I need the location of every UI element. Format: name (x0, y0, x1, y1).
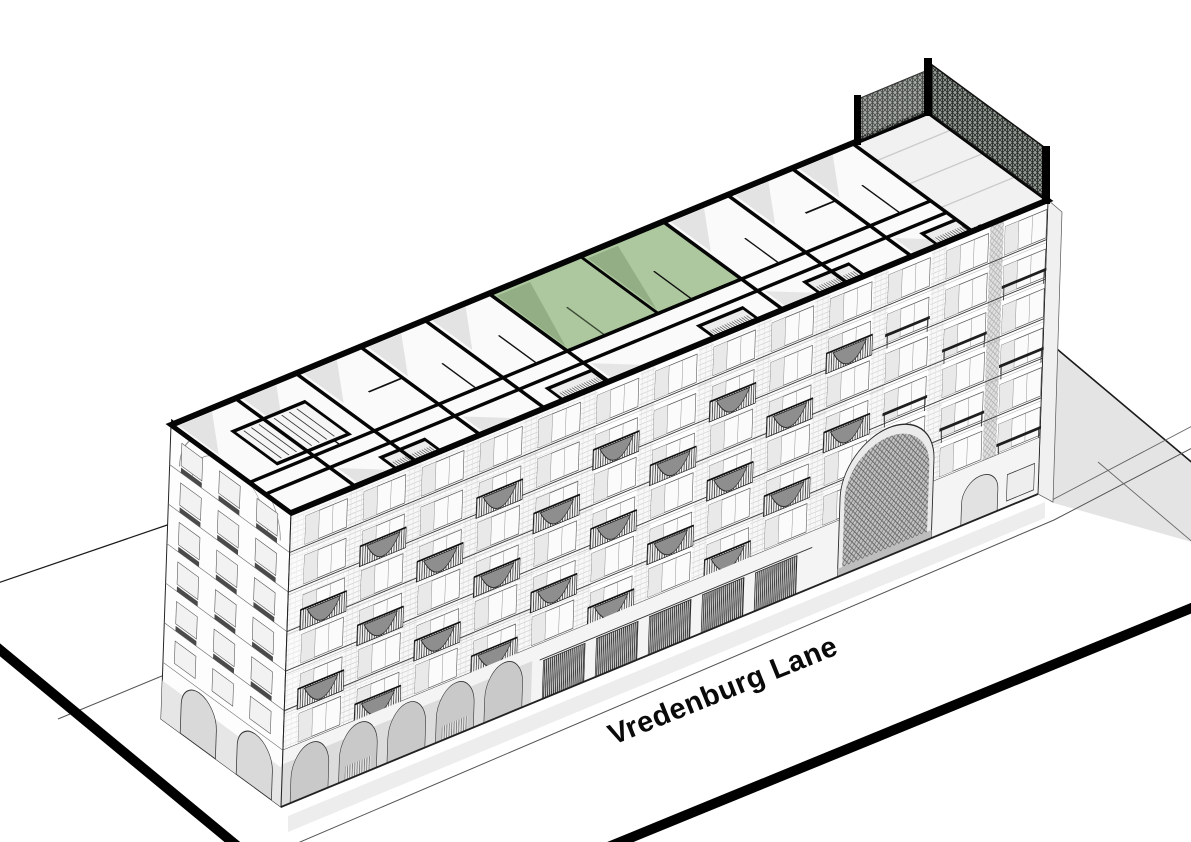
trellis-post (854, 95, 861, 145)
axonometric-drawing: Vredenburg Lane (0, 0, 1191, 842)
trellis-post (924, 58, 932, 116)
trellis-post (1042, 146, 1050, 204)
building-cast-shadow (1050, 350, 1191, 542)
plot-edge-northwest (0, 522, 176, 585)
architectural-diagram: Vredenburg Lane (0, 0, 1191, 842)
